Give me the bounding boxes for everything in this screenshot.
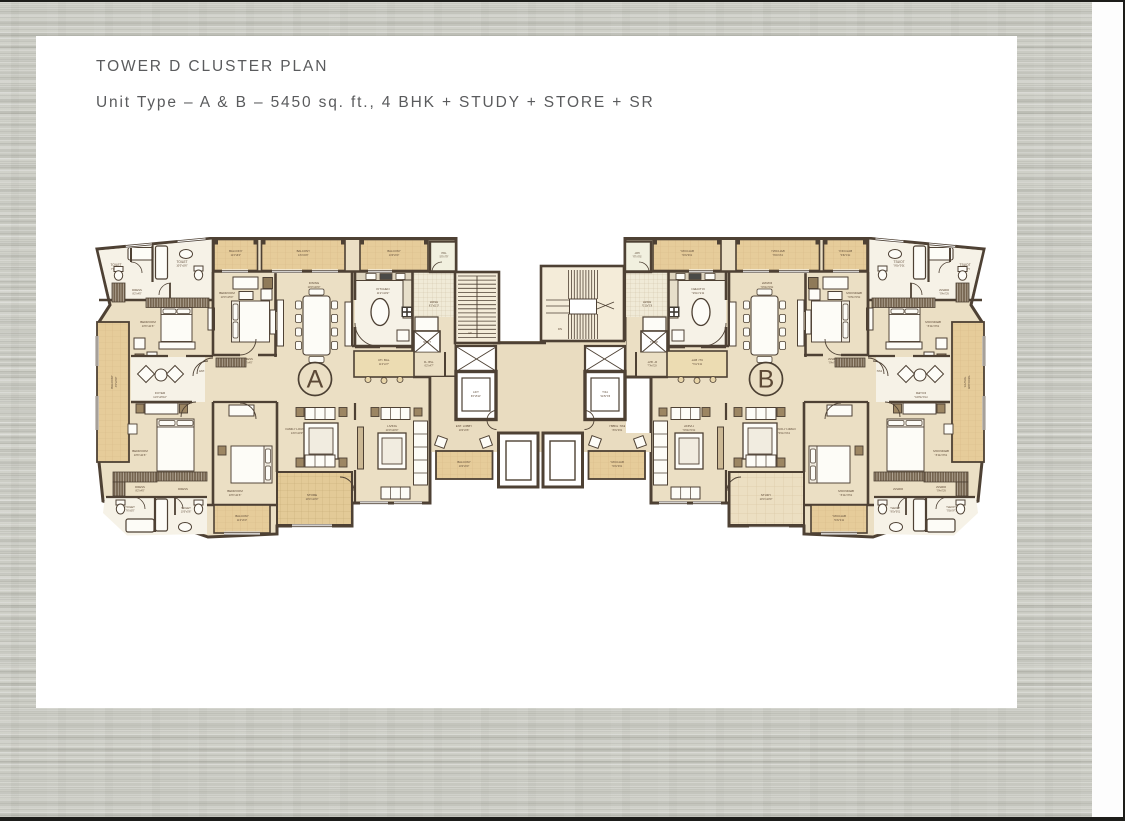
- svg-text:BEDROOM: BEDROOM: [227, 489, 243, 493]
- svg-text:DRESS: DRESS: [135, 485, 145, 489]
- svg-text:10'0"x20'0": 10'0"x20'0": [308, 285, 321, 289]
- svg-text:BALCONY: BALCONY: [110, 375, 114, 389]
- svg-text:13'4"x6'0": 13'4"x6'0": [298, 254, 309, 257]
- svg-text:WASH: WASH: [430, 300, 438, 304]
- svg-text:BALCONY: BALCONY: [457, 460, 471, 464]
- svg-text:14'0"x10'0": 14'0"x10'0": [291, 432, 303, 435]
- svg-text:6'2"x4'7": 6'2"x4'7": [424, 365, 433, 368]
- svg-text:FL. BSL.: FL. BSL.: [424, 360, 434, 364]
- svg-text:10'4"x6'6": 10'4"x6'6": [459, 429, 470, 432]
- svg-text:7'6"x5'0": 7'6"x5'0": [125, 510, 134, 513]
- svg-text:DRESS: DRESS: [178, 487, 188, 491]
- svg-text:ENT. LOBBY: ENT. LOBBY: [456, 424, 472, 428]
- svg-text:14'0"x6'0": 14'0"x6'0": [389, 254, 400, 257]
- svg-text:FOYER: FOYER: [155, 391, 166, 395]
- svg-text:A: A: [307, 366, 324, 394]
- svg-text:LIVING: LIVING: [387, 424, 398, 428]
- svg-text:BEDROOM: BEDROOM: [132, 449, 148, 453]
- svg-text:10'0"x5'6": 10'0"x5'6": [176, 264, 187, 268]
- svg-text:5'0"x7'9": 5'0"x7'9": [440, 257, 449, 259]
- svg-text:BALCONY: BALCONY: [229, 249, 243, 253]
- svg-text:10'4"x6'0": 10'4"x6'0": [459, 465, 470, 468]
- svg-text:TOILET: TOILET: [176, 260, 187, 264]
- svg-text:BALCONY: BALCONY: [297, 249, 311, 253]
- svg-text:13'0"x15'0": 13'0"x15'0": [221, 295, 234, 299]
- svg-text:ENT.: ENT.: [199, 369, 205, 373]
- svg-text:BEDROOM: BEDROOM: [219, 291, 235, 295]
- svg-text:DINING: DINING: [309, 281, 320, 285]
- svg-text:TOILET: TOILET: [125, 505, 135, 509]
- svg-text:14'0"x20'0": 14'0"x20'0": [386, 428, 399, 432]
- svg-text:STORE: STORE: [307, 493, 317, 497]
- svg-text:SHAFT: SHAFT: [423, 341, 431, 344]
- svg-text:UTI. BAL.: UTI. BAL.: [378, 358, 390, 362]
- svg-text:4'0"x15'0": 4'0"x15'0": [115, 377, 118, 388]
- svg-text:13'6"x11'6": 13'6"x11'6": [229, 493, 242, 497]
- svg-text:UP: UP: [468, 331, 472, 335]
- svg-text:6'6"x5'11": 6'6"x5'11": [471, 395, 481, 398]
- svg-text:8'2"x4'0": 8'2"x4'0": [135, 490, 144, 493]
- svg-text:DN: DN: [558, 327, 562, 331]
- svg-text:13'6"x11'6": 13'6"x11'6": [134, 453, 147, 457]
- svg-text:11'4"x6'0": 11'4"x6'0": [231, 254, 241, 257]
- svg-text:PDL: PDL: [441, 251, 447, 255]
- svg-text:10'0"x5'6": 10'0"x5'6": [181, 511, 192, 514]
- svg-text:KITCHEN: KITCHEN: [376, 287, 389, 291]
- svg-text:DRESS: DRESS: [132, 288, 142, 292]
- svg-text:11'2"x10'2": 11'2"x10'2": [377, 291, 390, 295]
- svg-text:10'4"x10'0": 10'4"x10'0": [306, 497, 319, 501]
- svg-text:13'6"x11'6": 13'6"x11'6": [142, 324, 155, 328]
- svg-text:10'4"x10'0": 10'4"x10'0": [760, 497, 773, 501]
- svg-text:11'4"x6'0": 11'4"x6'0": [237, 519, 247, 522]
- svg-text:B: B: [758, 366, 775, 394]
- svg-text:STUDY: STUDY: [761, 493, 771, 497]
- svg-text:6'2"x11'0": 6'2"x11'0": [429, 305, 439, 308]
- svg-text:BALCONY: BALCONY: [387, 249, 401, 253]
- svg-text:LIFT: LIFT: [473, 390, 479, 394]
- svg-text:11'4"x15'10": 11'4"x15'10": [153, 396, 167, 399]
- svg-text:BEDROOM: BEDROOM: [140, 320, 156, 324]
- svg-text:8'2"x4'0": 8'2"x4'0": [132, 293, 141, 296]
- svg-text:11'4"x4'7": 11'4"x4'7": [379, 363, 389, 366]
- svg-text:BALCONY: BALCONY: [235, 514, 249, 518]
